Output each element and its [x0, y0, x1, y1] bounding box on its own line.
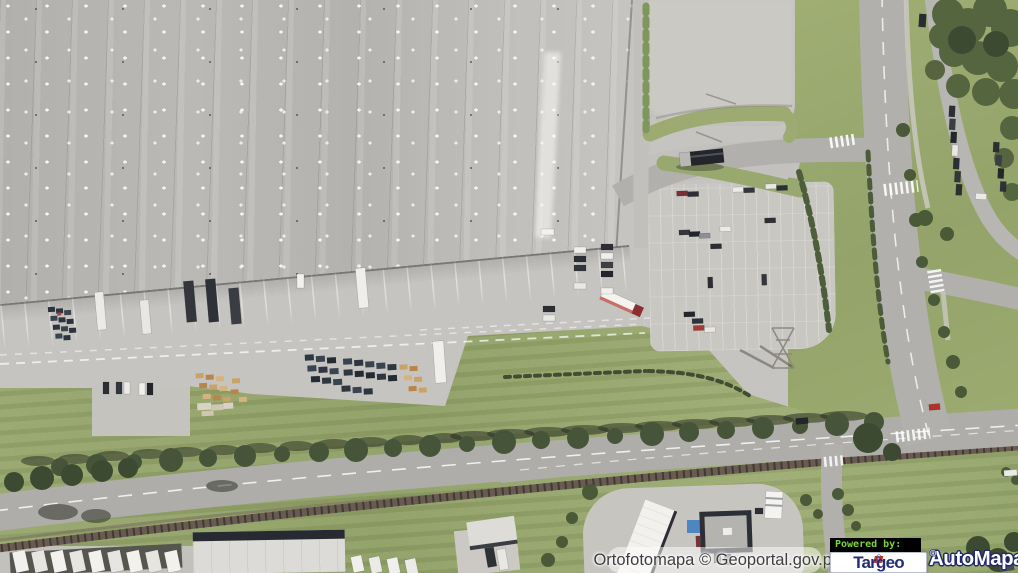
- powered-by-badge: Powered by:: [830, 538, 921, 552]
- attribution-text: Ortofotomapa © Geoportal.gov.pl: [593, 551, 835, 570]
- automapa-logo[interactable]: AutoMapa ®: [929, 545, 1017, 573]
- map-attribution: Ortofotomapa © Geoportal.gov.pl: [607, 547, 822, 573]
- industrial-building: [193, 530, 346, 573]
- map-canvas[interactable]: Ortofotomapa © Geoportal.gov.pl Powered …: [0, 0, 1018, 573]
- targeo-registered-mark: ®: [876, 555, 881, 562]
- parked-cars-yard: [103, 382, 153, 395]
- automapa-wordmark: AutoMapa: [929, 547, 1018, 571]
- map-features-overlay: [0, 0, 1018, 573]
- powered-by-label: Powered by:: [835, 540, 901, 550]
- power-pylon: [740, 328, 794, 368]
- automapa-registered-mark: ®: [930, 549, 936, 558]
- blue-canopy: [687, 520, 700, 533]
- parking-lot-cars: [676, 183, 792, 333]
- roof-vent: [723, 528, 732, 535]
- parked-cars-dock-edge: [541, 229, 613, 321]
- debris-pile: [197, 402, 234, 417]
- targeo-logo[interactable]: Targeo ®: [830, 552, 927, 573]
